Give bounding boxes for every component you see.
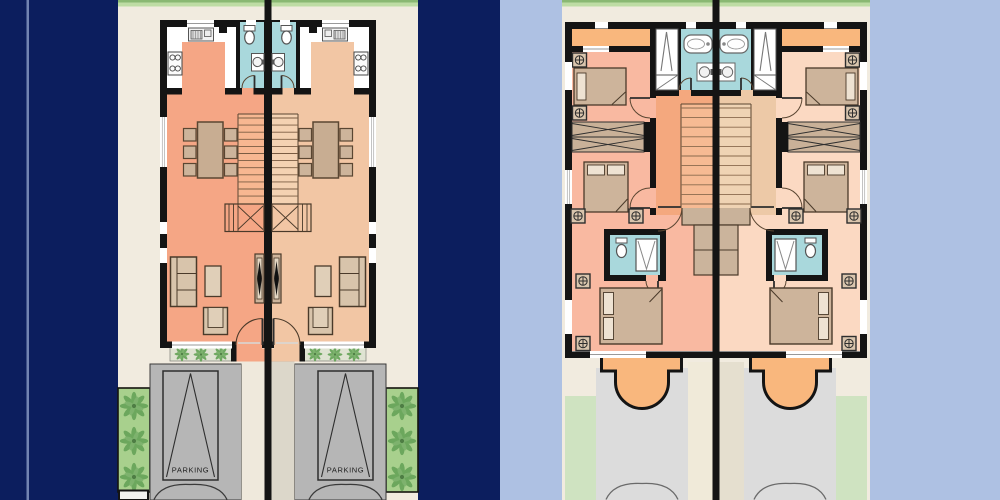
edge-stripe (27, 0, 30, 500)
walkway-shade (719, 362, 744, 500)
ground-floor-plan: PARKING PARKING (118, 0, 418, 500)
walkway-shade (272, 361, 295, 500)
party-wall (713, 0, 720, 500)
floor-plan-canvas: PARKING PARKING (0, 0, 1000, 500)
duplex-floor-plans: PARKING PARKING (0, 0, 1000, 500)
first-floor-unit-a (565, 22, 716, 500)
parking-label: PARKING (327, 466, 364, 475)
parking-label: PARKING (172, 466, 209, 475)
party-wall (265, 0, 272, 500)
first-floor-plan (562, 0, 870, 500)
gate-post (119, 491, 148, 500)
